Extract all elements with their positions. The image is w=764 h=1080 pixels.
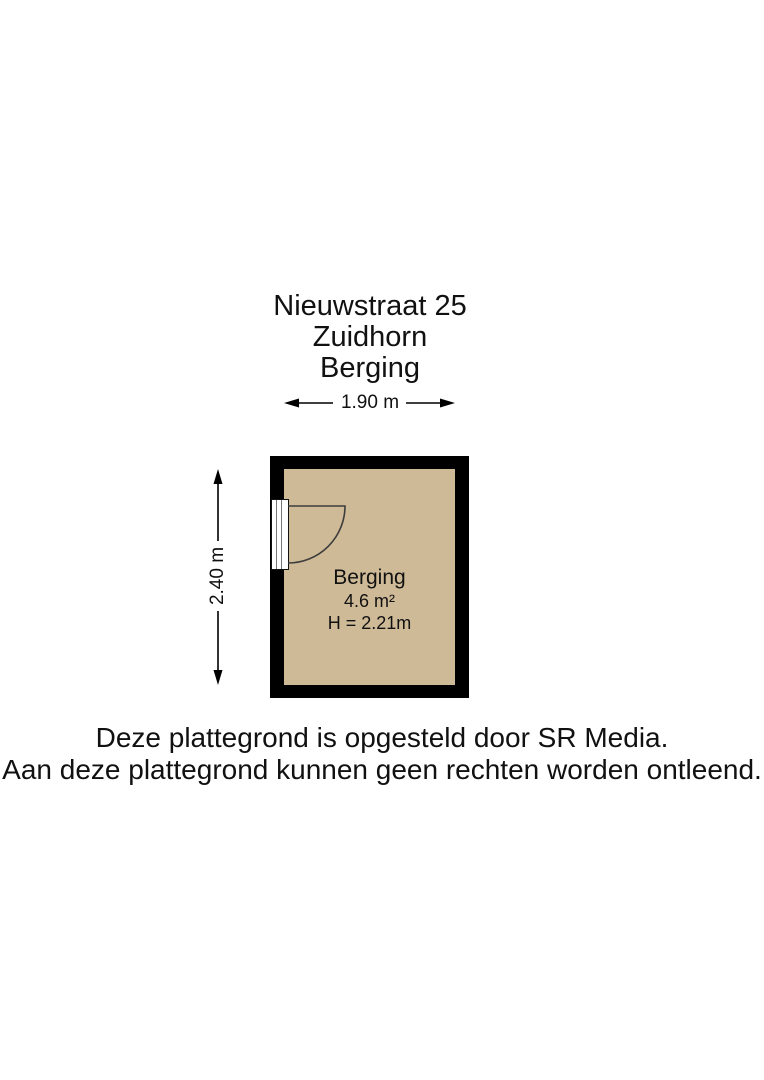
floorplan-page: Nieuwstraat 25 Zuidhorn Berging 1.90 m 2… (0, 0, 764, 1080)
room-label-block: Berging 4.6 m² H = 2.21m (284, 566, 455, 634)
disclaimer-line-2: Aan deze plattegrond kunnen geen rechten… (2, 754, 762, 786)
height-dimension-label: 2.40 m (207, 547, 229, 605)
plan-city: Zuidhorn (273, 322, 466, 353)
plan-room-title: Berging (273, 353, 466, 384)
plan-title-block: Nieuwstraat 25 Zuidhorn Berging (273, 291, 466, 384)
disclaimer-block: Deze plattegrond is opgesteld door SR Me… (2, 722, 762, 786)
width-dimension-label: 1.90 m (341, 392, 399, 414)
door-opening (271, 499, 289, 570)
room-ceiling-height-label: H = 2.21m (284, 612, 455, 634)
room-name-label: Berging (284, 566, 455, 590)
disclaimer-line-1: Deze plattegrond is opgesteld door SR Me… (2, 722, 762, 754)
room-area-label: 4.6 m² (284, 590, 455, 612)
plan-address: Nieuwstraat 25 (273, 291, 466, 322)
